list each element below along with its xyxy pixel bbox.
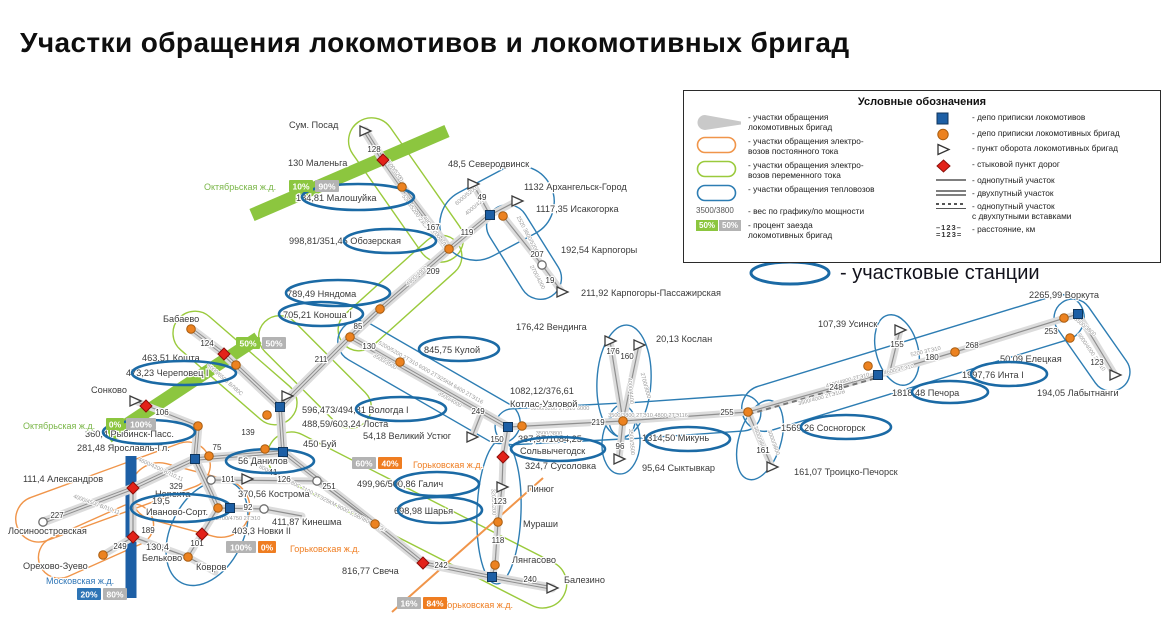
station-label: Мураши — [523, 519, 558, 529]
legend-item: - участки обращения электро-возов постоя… — [696, 136, 936, 157]
legend-item-text: - участки обращения электро-возов постоя… — [748, 136, 864, 157]
crew-percent-badge-text: 100% — [230, 543, 252, 553]
legend-item-text: - пункт оборота локомотивных бригад — [972, 143, 1118, 153]
distance-label: 160 — [620, 352, 634, 361]
distance-label: 124 — [200, 339, 214, 348]
station-label: 95,64 Сыктывкар — [642, 463, 715, 473]
distance-label: 227 — [50, 511, 64, 520]
station-label: Лянгасово — [512, 555, 556, 565]
station-label: Котлас-Узловой — [510, 399, 577, 409]
crew-depot-marker — [1066, 334, 1075, 343]
distance-label: 155 — [890, 340, 904, 349]
station-label: 130,4 — [146, 542, 169, 552]
railway-name-label: Октябрьская ж.д. — [204, 182, 276, 192]
track-line — [225, 353, 281, 406]
station-circle-marker — [313, 477, 321, 485]
legend-item-text: - участки обращениялокомотивных бригад — [748, 112, 832, 133]
distance-label: 119 — [461, 228, 474, 237]
railway-name-label: Горьковская ж.д. — [413, 460, 483, 470]
loco-depot-marker — [276, 403, 285, 412]
loco-depot-marker — [226, 504, 235, 513]
legend-left-column: - участки обращениялокомотивных бригад- … — [696, 112, 936, 244]
loco-depot-marker — [874, 371, 883, 380]
crew-depot-icon — [936, 128, 972, 141]
crew-percent-badge-text: 50% — [239, 339, 256, 349]
station-circle-marker — [538, 261, 546, 269]
crew-percent-badge-text: 100% — [130, 420, 152, 430]
corridor-band — [492, 577, 552, 588]
crew-depot-marker — [261, 445, 270, 454]
legend-item-text: - расстояние, км — [972, 224, 1035, 234]
distance-label: 209 — [426, 267, 440, 276]
station-label: 473,23 Череповец I — [126, 368, 208, 378]
crew-percent-badge-text: 50% — [265, 339, 282, 349]
percent-icon: 50%50% — [696, 220, 748, 231]
diesel-outline-icon — [696, 184, 748, 202]
station-label: 1117,35 Исакогорка — [536, 204, 620, 214]
station-label: 20,13 Кослан — [656, 334, 712, 344]
crew-depot-marker — [99, 551, 108, 560]
station-label: 111,4 Александров — [23, 474, 103, 484]
junction-icon — [936, 159, 972, 173]
distance-label: 139 — [241, 428, 255, 437]
distance-label: 128 — [367, 145, 381, 154]
station-label: Сольвычегодск — [520, 446, 586, 456]
distance-label: 176 — [606, 347, 620, 356]
crew-percent-badge-text: 60% — [355, 459, 372, 469]
legend-box: Условные обозначения - участки обращения… — [683, 90, 1161, 263]
station-label: 370,56 Кострома — [238, 489, 310, 499]
crew-depot-marker — [619, 417, 628, 426]
crew-percent-badge-text: 84% — [426, 599, 443, 609]
legend-item: 3500/3800- вес по графику/по мощности — [696, 206, 936, 216]
dc-outline-icon — [696, 136, 748, 154]
crew-percent-badge-text: 0% — [109, 420, 122, 430]
crew-depot-marker — [445, 245, 454, 254]
station-label: 360,4 Рыбинск-Пасс. — [85, 429, 174, 439]
junction-stations-callout: - участковые станции — [748, 260, 1040, 286]
distance-label: 189 — [141, 526, 155, 535]
distance-label: 161 — [756, 446, 770, 455]
station-label: Пинюг — [527, 484, 555, 494]
station-label: 211,92 Карпогоры-Пассажирская — [581, 288, 721, 298]
crew-depot-marker — [494, 518, 503, 527]
distance-label: 251 — [322, 482, 336, 491]
station-label: 2265,99 Воркута — [1029, 290, 1100, 300]
station-label: Балезино — [564, 575, 605, 585]
distance-label: 249 — [471, 407, 485, 416]
railway-name-label: Московская ж.д. — [46, 576, 114, 586]
crew-percent-badge-text: 80% — [106, 590, 123, 600]
crew-depot-marker — [491, 561, 500, 570]
legend-item: - однопутный участокс двухпутными вставк… — [936, 201, 1156, 222]
crew-depot-marker — [205, 452, 214, 461]
legend-item-text: - стыковой пункт дорог — [972, 159, 1060, 169]
distance-label: 123 — [1090, 358, 1104, 367]
loco-depot-marker — [504, 423, 513, 432]
crew-depot-marker — [376, 305, 385, 314]
loco-depot-marker — [1074, 310, 1083, 319]
crew-percent-badge-text: 0% — [261, 543, 274, 553]
crew-depot-marker — [864, 362, 873, 371]
station-label: 324,7 Сусоловка — [525, 461, 597, 471]
station-label: Бабаево — [163, 314, 199, 324]
crew-depot-marker — [184, 553, 193, 562]
distance-label: 180 — [925, 353, 939, 362]
distance-label: 219 — [591, 418, 605, 427]
station-label: 19,5 — [152, 496, 170, 506]
crew-depot-marker — [1060, 314, 1069, 323]
legend-item-text: - участки обращения тепловозов — [748, 184, 875, 194]
ac-outline-icon — [696, 160, 748, 178]
crew-depot-marker — [396, 358, 405, 367]
station-label: 184,81 Малошуйка — [296, 193, 377, 203]
loco-depot-marker — [279, 448, 288, 457]
weight-icon: 3500/3800 — [696, 206, 748, 215]
legend-item: - стыковой пункт дорог — [936, 159, 1156, 173]
railway-name-label: Горьковская ж.д. — [290, 544, 360, 554]
station-label: 161,07 Троицко-Печорск — [794, 467, 899, 477]
crew-percent-badge-text: 90% — [318, 182, 335, 192]
station-label: 789,49 Няндома — [287, 289, 357, 299]
distance-label: 101 — [221, 475, 235, 484]
blue-traction-region-outline — [1047, 292, 1138, 399]
crew-depot-marker — [499, 212, 508, 221]
legend-item: - депо приписки локомотивов — [936, 112, 1156, 125]
distance-label: 130 — [362, 342, 376, 351]
station-label: 705,21 Коноша I — [283, 310, 352, 320]
station-label: Сонково — [91, 385, 127, 395]
distance-label: 211 — [315, 355, 328, 364]
station-label: Иваново-Сорт. — [146, 507, 208, 517]
station-label: 1314,50 Микунь — [642, 433, 709, 443]
legend-item-text: - депо приписки локомотивных бригад — [972, 128, 1120, 138]
station-label: 56 Данилов — [238, 456, 288, 466]
legend-right-column: - депо приписки локомотивов- депо припис… — [936, 112, 1156, 244]
distance-label: 96 — [616, 442, 625, 451]
distance-label: 92 — [244, 503, 253, 512]
station-label: Лосиноостровская — [8, 526, 87, 536]
crew-depot-marker — [187, 325, 196, 334]
loco-depot-marker — [488, 573, 497, 582]
station-label: 1569,26 Сосногорск — [781, 423, 866, 433]
track-weight-label: 2700/3000 — [639, 372, 652, 399]
legend-item-text: - однопутный участокс двухпутными вставк… — [972, 201, 1071, 222]
legend-item-text: - вес по графику/по мощности — [748, 206, 864, 216]
station-label: Ковров — [196, 562, 227, 572]
section-station-ellipse-icon — [748, 260, 832, 286]
distance-label: 150 — [490, 435, 504, 444]
station-label: 411,87 Кинешма — [272, 517, 342, 527]
distance-label: 106 — [155, 408, 169, 417]
crew-depot-marker — [194, 422, 203, 431]
brigade-band-icon — [696, 112, 748, 132]
crew-percent-badge-text: 16% — [400, 599, 417, 609]
legend-item-text: - двухпутный участок — [972, 188, 1054, 198]
station-label: 488,59/603,24 Лоста — [302, 419, 389, 429]
legend-title: Условные обозначения — [684, 96, 1160, 108]
railway-name-label: Октябрьская ж.д. — [23, 421, 95, 431]
station-label: 54,18 Великий Устюг — [363, 431, 452, 441]
legend-item-text: - однопутный участок — [972, 175, 1055, 185]
legend-item: - участки обращения тепловозов — [696, 184, 936, 202]
legend-item-text: - процент заездалокомотивных бригад — [748, 220, 832, 241]
legend-item: 50%50%- процент заездалокомотивных брига… — [696, 220, 936, 241]
legend-item: - участки обращениялокомотивных бригад — [696, 112, 936, 133]
distance-label: 268 — [965, 341, 979, 350]
station-label: Сум. Посад — [289, 120, 339, 130]
double-icon — [936, 188, 972, 198]
station-label: 1082,12/376,61 — [510, 386, 574, 396]
station-label: Бельково — [142, 553, 182, 563]
crew-depot-marker — [263, 411, 272, 420]
distance-label: 19 — [546, 276, 555, 285]
station-label: Орехово-Зуево — [23, 561, 88, 571]
crew-depot-marker — [346, 333, 355, 342]
station-circle-marker — [207, 476, 215, 484]
inserts-icon — [936, 201, 972, 211]
crew-percent-badge-text: 40% — [381, 459, 398, 469]
legend-item: - участки обращения электро-возов переме… — [696, 160, 936, 181]
distance-label: 207 — [530, 250, 544, 259]
crew-percent-badge-text: 20% — [80, 590, 97, 600]
legend-item: –123–=123=- расстояние, км — [936, 224, 1156, 239]
loco-depot-icon — [936, 112, 972, 125]
distance-label: 49 — [478, 193, 487, 202]
station-label: 48,5 Северодвинск — [448, 159, 530, 169]
legend-item: - двухпутный участок — [936, 188, 1156, 198]
station-label: 450 Буй — [303, 439, 336, 449]
legend-columns: - участки обращениялокомотивных бригад- … — [684, 112, 1160, 244]
distance-icon: –123–=123= — [936, 224, 972, 239]
crew-depot-marker — [744, 408, 753, 417]
station-circle-marker — [260, 505, 268, 513]
crew-depot-marker — [518, 422, 527, 431]
crew-depot-marker — [232, 361, 241, 370]
station-label: 499,96/500,86 Галич — [357, 479, 443, 489]
junction-stations-label: - участковые станции — [840, 262, 1040, 285]
distance-label: 240 — [523, 575, 537, 584]
distance-label: 123 — [493, 497, 507, 506]
station-label: 845,75 Кулой — [424, 345, 480, 355]
loco-depot-marker — [191, 455, 200, 464]
distance-label: 253 — [1044, 327, 1058, 336]
legend-item: - депо приписки локомотивных бригад — [936, 128, 1156, 141]
crew-turn-icon — [936, 143, 972, 156]
distance-label: 248 — [829, 383, 843, 392]
crew-depot-marker — [398, 183, 407, 192]
station-label: 192,54 Карпогоры — [561, 245, 637, 255]
distance-label: 167 — [426, 223, 440, 232]
track-weight-label: 3500/3500 — [627, 428, 635, 455]
station-label: 698,98 Шарья — [394, 506, 453, 516]
single-icon — [936, 175, 972, 185]
station-label: 1132 Архангельск-Город — [524, 182, 627, 192]
crew-percent-badge-text: 10% — [292, 182, 309, 192]
crew-depot-marker — [951, 348, 960, 357]
loco-depot-marker — [486, 211, 495, 220]
station-label: 194,05 Лабытнанги — [1037, 388, 1119, 398]
crew-depot-marker — [371, 520, 380, 529]
station-label: 816,77 Свеча — [342, 566, 400, 576]
station-label: 1818,48 Печора — [892, 388, 960, 398]
distance-label: 249 — [113, 542, 127, 551]
legend-item-text: - участки обращения электро-возов переме… — [748, 160, 864, 181]
distance-label: 242 — [434, 561, 448, 570]
distance-label: 126 — [277, 475, 291, 484]
legend-item-text: - депо приписки локомотивов — [972, 112, 1085, 122]
station-circle-marker — [39, 518, 47, 526]
legend-item: - однопутный участок — [936, 175, 1156, 185]
station-label: 130 Маленьга — [288, 158, 348, 168]
station-label: 107,39 Усинск — [818, 319, 878, 329]
distance-label: 255 — [720, 408, 734, 417]
distance-label: 118 — [492, 536, 505, 545]
distance-label: 85 — [354, 322, 363, 331]
station-label: 176,42 Вендинга — [516, 322, 588, 332]
crew-depot-marker — [214, 504, 223, 513]
distance-label: 75 — [213, 443, 222, 452]
railway-name-label: Горьковская ж.д. — [443, 600, 513, 610]
station-label: 403,3 Новки II — [232, 526, 291, 536]
legend-item: - пункт оборота локомотивных бригад — [936, 143, 1156, 156]
